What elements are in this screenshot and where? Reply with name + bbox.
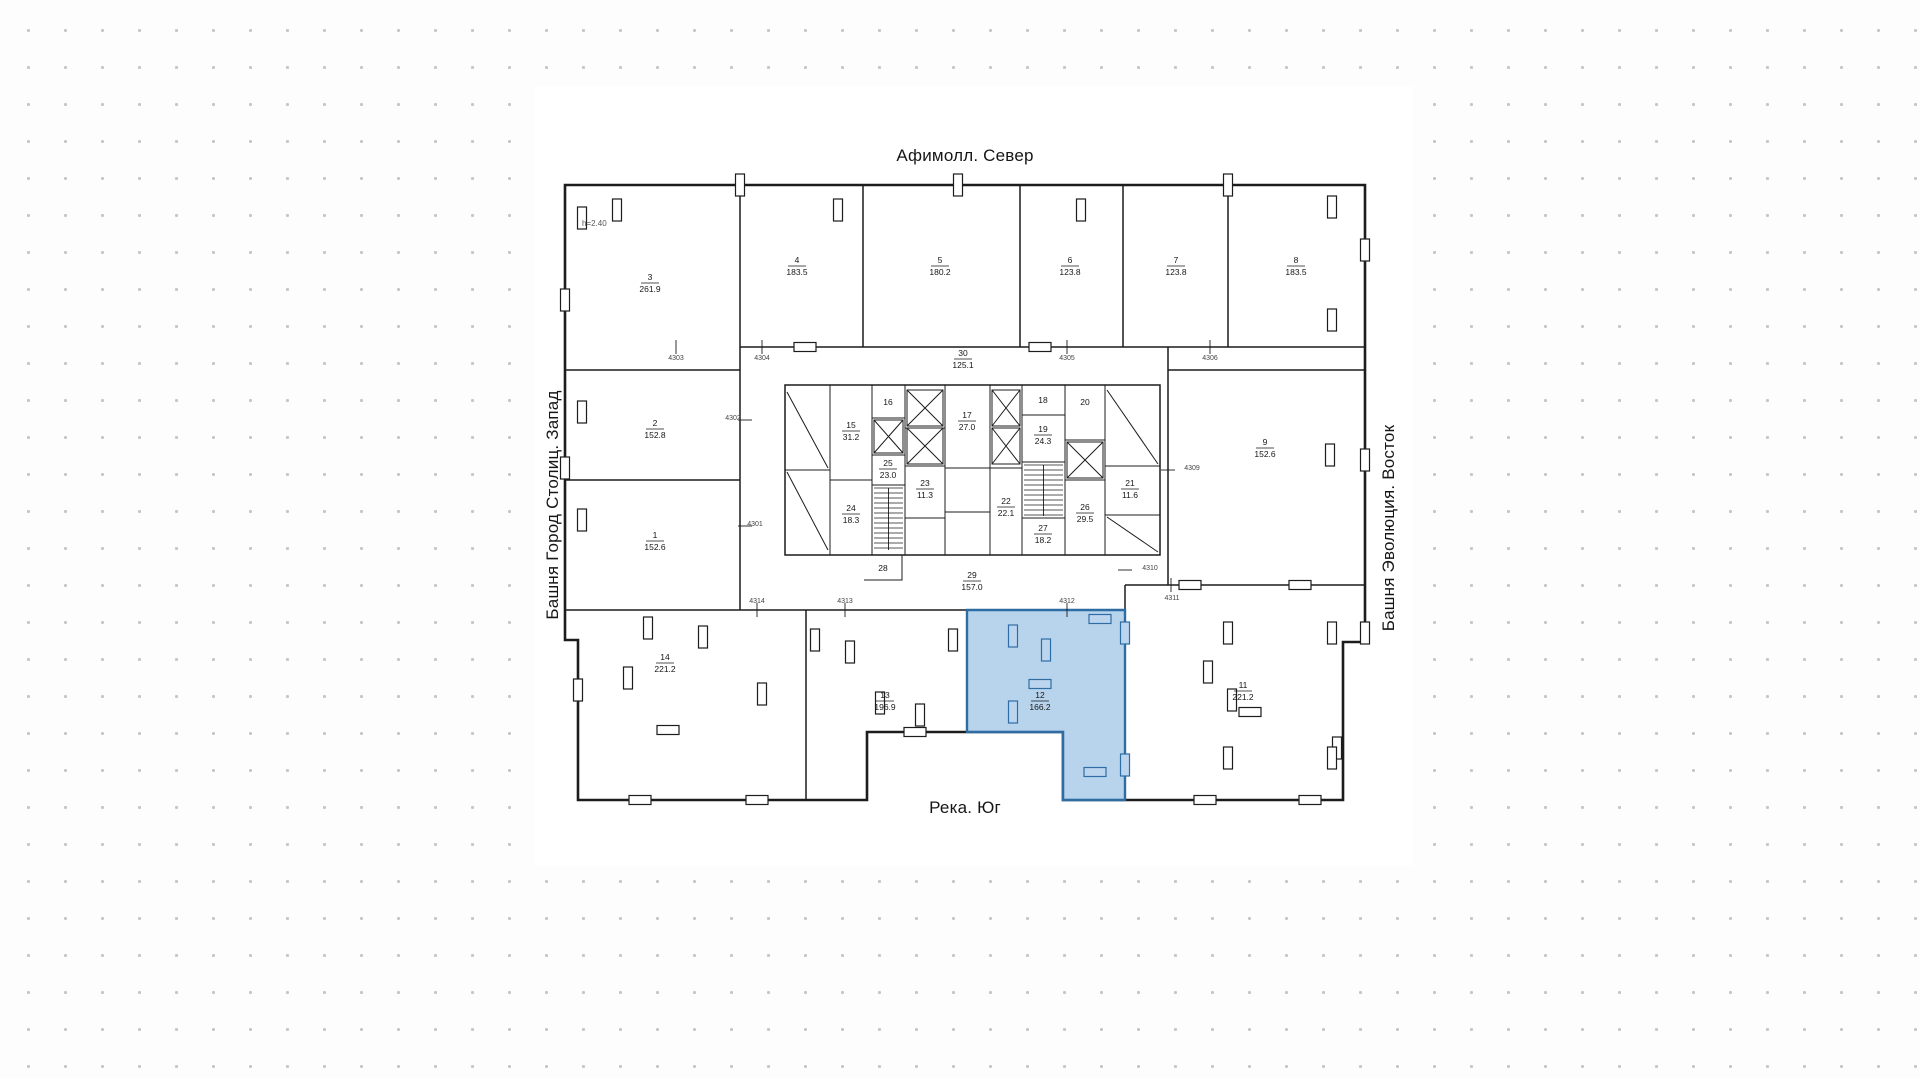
grid-axis-tag: 4304 bbox=[754, 355, 770, 362]
window-icon bbox=[1328, 622, 1337, 644]
orientation-label-east: Башня Эволюция. Восток bbox=[1379, 378, 1399, 678]
elevator-x-icon bbox=[907, 428, 943, 464]
room-area: 23.0 bbox=[880, 470, 897, 480]
window-icon bbox=[613, 199, 622, 221]
window-icon bbox=[1289, 581, 1311, 590]
room-number: 5 bbox=[938, 255, 943, 265]
room-area: 22.1 bbox=[998, 508, 1015, 518]
room-number: 20 bbox=[1080, 397, 1090, 407]
window-icon bbox=[846, 641, 855, 663]
room-number: 25 bbox=[883, 458, 893, 468]
window-icon bbox=[1328, 747, 1337, 769]
room-26-label: 2629.5 bbox=[1076, 502, 1094, 524]
room-area: 24.3 bbox=[1035, 436, 1052, 446]
elevator-x-icon bbox=[992, 390, 1020, 426]
highlight-window-icon bbox=[1029, 680, 1051, 689]
room-area: 196.9 bbox=[874, 702, 896, 712]
highlight-window-icon bbox=[1009, 701, 1018, 723]
room-area: 123.8 bbox=[1059, 267, 1081, 277]
window-icon bbox=[794, 343, 816, 352]
grid-axis-tag: 4312 bbox=[1059, 598, 1075, 605]
room-area: 18.2 bbox=[1035, 535, 1052, 545]
grid-axis-tag: 4314 bbox=[749, 598, 765, 605]
room-21-label: 2111.6 bbox=[1121, 478, 1139, 500]
room-19-label: 1924.3 bbox=[1034, 424, 1052, 446]
room-number: 18 bbox=[1038, 395, 1048, 405]
room-area: 123.8 bbox=[1165, 267, 1187, 277]
shaft-diagonal-icon bbox=[1107, 390, 1158, 464]
window-icon bbox=[629, 796, 651, 805]
room-6-label: 6123.8 bbox=[1059, 255, 1081, 277]
window-icon bbox=[1299, 796, 1321, 805]
room-area: 261.9 bbox=[639, 284, 661, 294]
room-29-label: 29157.0 bbox=[961, 570, 983, 592]
window-icon bbox=[904, 728, 926, 737]
room-area: 11.3 bbox=[917, 490, 933, 500]
room-area: 183.5 bbox=[786, 267, 808, 277]
room-28-label: 28 bbox=[878, 563, 888, 573]
window-icon bbox=[746, 796, 768, 805]
room-16-label: 16 bbox=[883, 397, 893, 407]
window-icon bbox=[736, 174, 745, 196]
room-1-label: 1152.6 bbox=[644, 530, 666, 552]
grid-axis-tag: 4313 bbox=[837, 598, 853, 605]
room-2-label: 2152.8 bbox=[644, 418, 666, 440]
room-number: 17 bbox=[962, 410, 972, 420]
window-icon bbox=[949, 629, 958, 651]
window-icon bbox=[1239, 708, 1261, 717]
window-icon bbox=[1194, 796, 1216, 805]
window-icon bbox=[1179, 581, 1201, 590]
room-area: 152.8 bbox=[644, 430, 666, 440]
room-number: 15 bbox=[846, 420, 856, 430]
orientation-label-south: Река. Юг bbox=[845, 798, 1085, 818]
shaft-diagonal-icon bbox=[787, 472, 828, 550]
highlight-window-icon bbox=[1121, 622, 1130, 644]
grid-axis-tag: 4303 bbox=[668, 355, 684, 362]
room-number: 4 bbox=[795, 255, 800, 265]
room-4-label: 4183.5 bbox=[786, 255, 808, 277]
window-icon bbox=[834, 199, 843, 221]
shaft-diagonal-icon bbox=[787, 392, 828, 468]
grid-axis-tag: 4301 bbox=[747, 521, 763, 528]
window-icon bbox=[1361, 449, 1370, 471]
window-icon bbox=[578, 401, 587, 423]
elevator-x-icon bbox=[1067, 442, 1103, 478]
room-number: 8 bbox=[1294, 255, 1299, 265]
room-area: 152.6 bbox=[644, 542, 666, 552]
window-icon bbox=[1077, 199, 1086, 221]
window-icon bbox=[1328, 196, 1337, 218]
room-number: 3 bbox=[648, 272, 653, 282]
room-area: 221.2 bbox=[654, 664, 676, 674]
room-7-label: 7123.8 bbox=[1165, 255, 1187, 277]
window-icon bbox=[657, 726, 679, 735]
room-8-label: 8183.5 bbox=[1285, 255, 1307, 277]
window-icon bbox=[1029, 343, 1051, 352]
grid-axis-tag: 4302 bbox=[725, 415, 741, 422]
window-icon bbox=[574, 679, 583, 701]
window-icon bbox=[624, 667, 633, 689]
room-22-label: 2222.1 bbox=[997, 496, 1015, 518]
room-number: 21 bbox=[1125, 478, 1135, 488]
room-area: 27.0 bbox=[959, 422, 976, 432]
window-icon bbox=[1326, 444, 1335, 466]
room-number: 12 bbox=[1035, 690, 1045, 700]
room-area: 166.2 bbox=[1029, 702, 1051, 712]
room-number: 24 bbox=[846, 503, 856, 513]
room-number: 6 bbox=[1068, 255, 1073, 265]
room-number: 16 bbox=[883, 397, 893, 407]
room-number: 1 bbox=[653, 530, 658, 540]
room-23-label: 2311.3 bbox=[916, 478, 934, 500]
room-5-label: 5180.2 bbox=[929, 255, 951, 277]
room-11-label: 11221.2 bbox=[1232, 680, 1254, 702]
room-30-label: 30125.1 bbox=[952, 348, 974, 370]
elevator-x-icon bbox=[907, 390, 943, 426]
window-icon bbox=[644, 617, 653, 639]
grid-axis-tag: 4305 bbox=[1059, 355, 1075, 362]
ceiling-height-note: h=2.40 bbox=[582, 219, 607, 228]
window-icon bbox=[811, 629, 820, 651]
room-area: 221.2 bbox=[1232, 692, 1254, 702]
window-icon bbox=[1361, 239, 1370, 261]
room-number: 28 bbox=[878, 563, 888, 573]
room-14-label: 14221.2 bbox=[654, 652, 676, 674]
grid-axis-tag: 4311 bbox=[1164, 595, 1179, 602]
room-number: 2 bbox=[653, 418, 658, 428]
window-icon bbox=[1204, 661, 1213, 683]
room-17-label: 1727.0 bbox=[958, 410, 976, 432]
room-number: 26 bbox=[1080, 502, 1090, 512]
room-number: 30 bbox=[958, 348, 968, 358]
window-icon bbox=[1361, 622, 1370, 644]
room-area: 152.6 bbox=[1254, 449, 1276, 459]
orientation-label-west: Башня Город Столиц. Запад bbox=[543, 355, 563, 655]
window-icon bbox=[758, 683, 767, 705]
room-area: 18.3 bbox=[843, 515, 860, 525]
shaft-diagonal-icon bbox=[1107, 517, 1158, 552]
room-number: 23 bbox=[920, 478, 930, 488]
room-area: 29.5 bbox=[1077, 514, 1094, 524]
elevator-x-icon bbox=[874, 420, 903, 453]
room-number: 19 bbox=[1038, 424, 1048, 434]
room-area: 11.6 bbox=[1122, 490, 1138, 500]
room-24-label: 2418.3 bbox=[842, 503, 860, 525]
highlight-window-icon bbox=[1009, 625, 1018, 647]
room-number: 14 bbox=[660, 652, 670, 662]
highlight-window-icon bbox=[1121, 754, 1130, 776]
room-number: 7 bbox=[1174, 255, 1179, 265]
window-icon bbox=[578, 509, 587, 531]
grid-axis-tag: 4310 bbox=[1142, 565, 1158, 572]
grid-axis-tag: 4309 bbox=[1184, 465, 1200, 472]
room-area: 125.1 bbox=[952, 360, 974, 370]
canvas: { "plan": { "title_north": "Афимолл. Сев… bbox=[0, 0, 1920, 1078]
orientation-label-north: Афимолл. Север bbox=[845, 146, 1085, 166]
window-icon bbox=[1224, 622, 1233, 644]
window-icon bbox=[699, 626, 708, 648]
room-number: 29 bbox=[967, 570, 977, 580]
room-9-label: 9152.6 bbox=[1254, 437, 1276, 459]
window-icon bbox=[954, 174, 963, 196]
room-number: 13 bbox=[880, 690, 890, 700]
elevator-x-icon bbox=[992, 428, 1020, 464]
window-icon bbox=[561, 289, 570, 311]
highlight-window-icon bbox=[1042, 639, 1051, 661]
room-area: 180.2 bbox=[929, 267, 951, 277]
highlight-window-icon bbox=[1089, 615, 1111, 624]
room-18-label: 18 bbox=[1038, 395, 1048, 405]
room-number: 22 bbox=[1001, 496, 1011, 506]
window-icon bbox=[1224, 747, 1233, 769]
room-area: 183.5 bbox=[1285, 267, 1307, 277]
room-number: 27 bbox=[1038, 523, 1048, 533]
room-25-label: 2523.0 bbox=[879, 458, 897, 480]
window-icon bbox=[1224, 174, 1233, 196]
highlight-window-icon bbox=[1084, 768, 1106, 777]
room-27-label: 2718.2 bbox=[1034, 523, 1052, 545]
room-area: 157.0 bbox=[961, 582, 983, 592]
room-number: 11 bbox=[1239, 680, 1248, 690]
grid-axis-tag: 4306 bbox=[1202, 355, 1218, 362]
room-20-label: 20 bbox=[1080, 397, 1090, 407]
room-area: 31.2 bbox=[843, 432, 860, 442]
room-15-label: 1531.2 bbox=[842, 420, 860, 442]
window-icon bbox=[1328, 309, 1337, 331]
interior-wall bbox=[785, 385, 1160, 555]
window-icon bbox=[916, 704, 925, 726]
room-3-label: 3261.9 bbox=[639, 272, 661, 294]
room-number: 9 bbox=[1263, 437, 1268, 447]
